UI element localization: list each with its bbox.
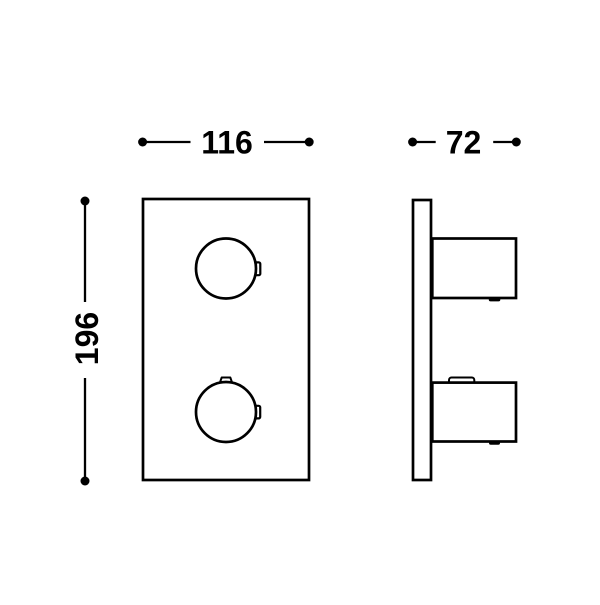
svg-text:116: 116 <box>201 125 253 161</box>
svg-text:196: 196 <box>69 312 105 365</box>
svg-text:72: 72 <box>446 125 482 161</box>
